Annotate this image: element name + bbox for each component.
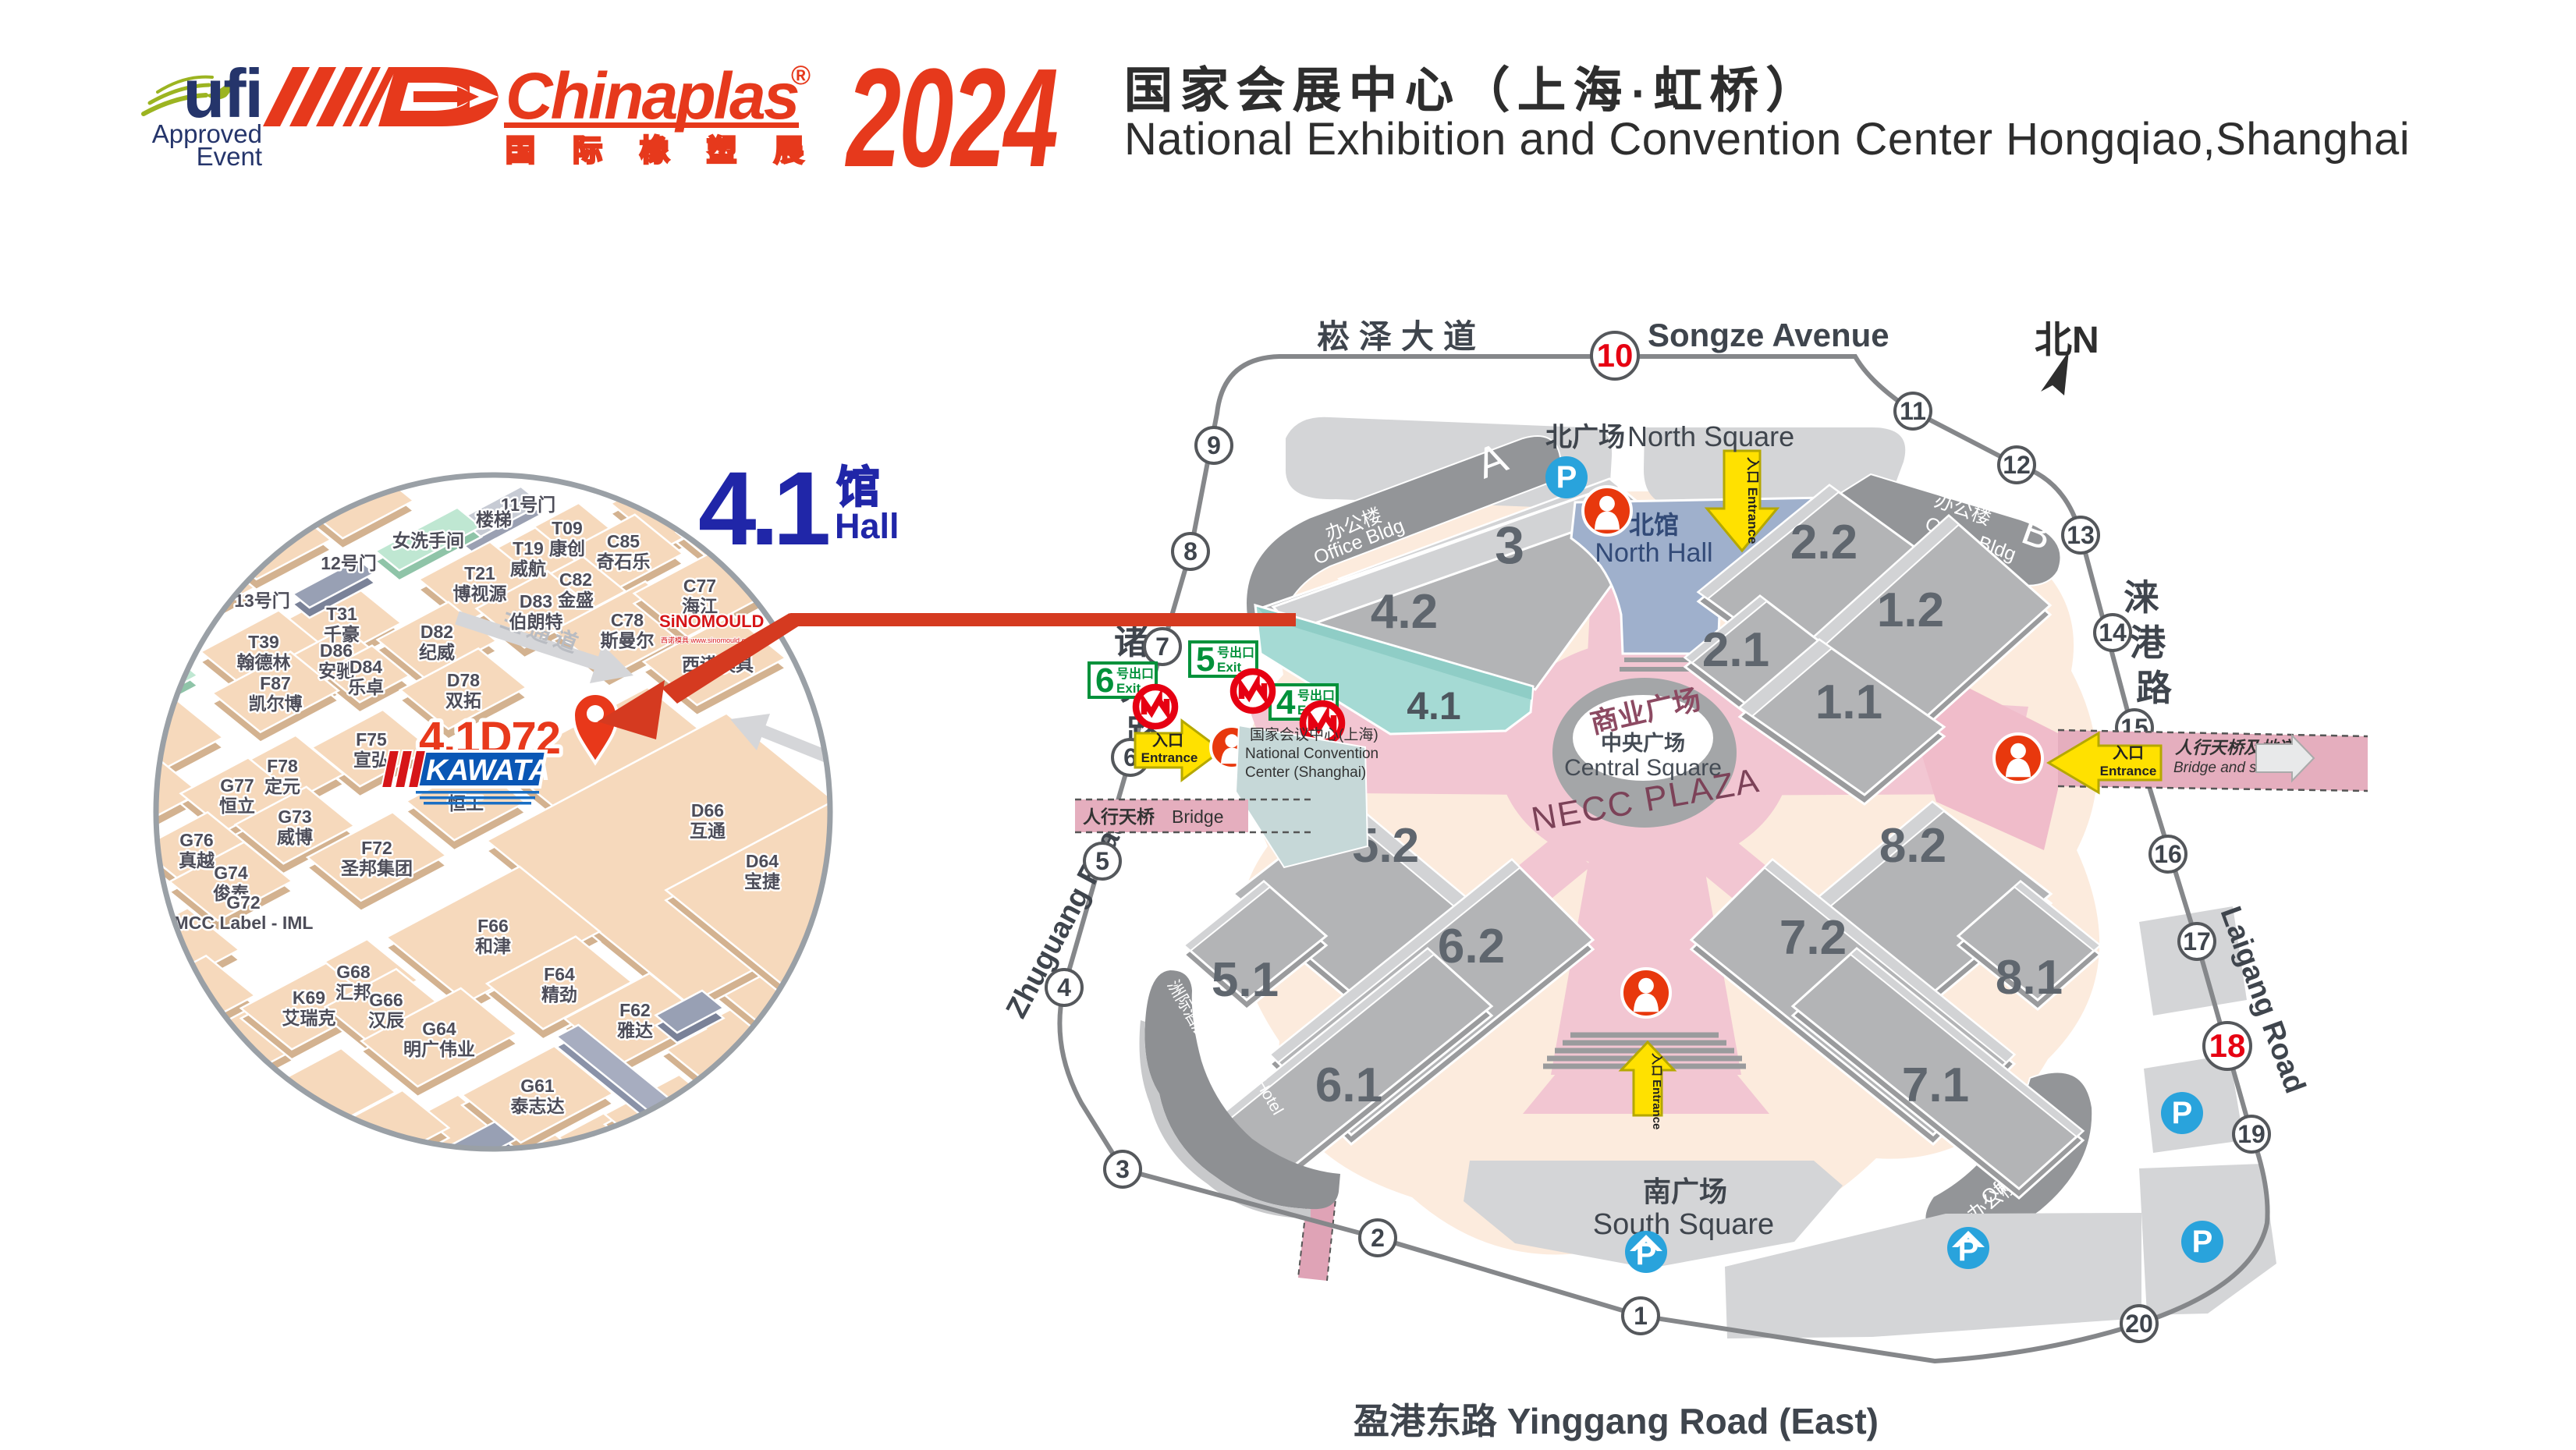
svg-text:人行天桥: 人行天桥 <box>1083 807 1155 827</box>
svg-text:间: 间 <box>133 571 151 591</box>
svg-text:北馆: 北馆 <box>1629 511 1679 539</box>
svg-text:南广场: 南广场 <box>1643 1175 1727 1207</box>
svg-text:8: 8 <box>1183 537 1198 565</box>
svg-text:National Exhibition and Conven: National Exhibition and Convention Cente… <box>1124 114 2410 165</box>
svg-text:入口 Entrance: 入口 Entrance <box>1650 1053 1663 1129</box>
svg-text:12: 12 <box>2003 451 2031 479</box>
svg-text:12号门: 12号门 <box>321 553 377 573</box>
svg-text:国际橡塑展: 国际橡塑展 <box>506 135 841 168</box>
svg-text:17: 17 <box>2183 927 2211 955</box>
svg-text:中央广场: 中央广场 <box>1601 732 1685 755</box>
svg-text:P: P <box>2192 1225 2213 1259</box>
svg-text:SiNOMOULD: SiNOMOULD <box>659 612 764 631</box>
svg-text:Entrance: Entrance <box>1141 750 1198 765</box>
svg-text:2024: 2024 <box>845 39 1057 197</box>
svg-text:North Hall: North Hall <box>1595 538 1712 568</box>
svg-text:Center (Shanghai): Center (Shanghai) <box>1245 764 1366 781</box>
svg-text:C77海江: C77海江 <box>682 576 718 616</box>
svg-text:F75宣弘: F75宣弘 <box>353 729 389 770</box>
svg-text:C82金盛: C82金盛 <box>557 569 594 610</box>
svg-text:7.2: 7.2 <box>1779 911 1847 965</box>
svg-text:6.1: 6.1 <box>1315 1058 1382 1112</box>
svg-text:10: 10 <box>1597 337 1634 374</box>
svg-text:1.1: 1.1 <box>1815 675 1882 729</box>
svg-text:P: P <box>2172 1096 2193 1130</box>
svg-text:8.2: 8.2 <box>1879 819 1946 873</box>
svg-text:Event: Event <box>197 142 262 171</box>
svg-text:P: P <box>1556 460 1577 495</box>
svg-text:F66和津: F66和津 <box>475 916 511 956</box>
svg-text:D82纪威: D82纪威 <box>419 622 455 662</box>
svg-text:楼梯: 楼梯 <box>476 509 512 530</box>
svg-text:4.1: 4.1 <box>1407 684 1461 728</box>
svg-text:4.1: 4.1 <box>698 451 829 567</box>
svg-text:Chinaplas: Chinaplas <box>506 59 798 133</box>
svg-text:North Square: North Square <box>1627 420 1794 452</box>
svg-text:6: 6 <box>1095 661 1114 700</box>
svg-text:2.1: 2.1 <box>1702 623 1769 677</box>
svg-text:D78双拓: D78双拓 <box>445 670 481 711</box>
svg-text:国家会展中心（上海·虹桥）: 国家会展中心（上海·虹桥） <box>1124 64 1822 118</box>
svg-text:路: 路 <box>2136 668 2173 708</box>
svg-text:9: 9 <box>1207 431 1221 459</box>
svg-text:F62雅达: F62雅达 <box>617 1000 653 1041</box>
svg-text:7.1: 7.1 <box>1902 1058 1969 1112</box>
svg-text:盈港东路 Yinggang Road (East): 盈港东路 Yinggang Road (East) <box>1354 1401 1879 1441</box>
svg-text:涞: 涞 <box>2124 577 2159 618</box>
svg-text:F78定元: F78定元 <box>264 756 300 796</box>
svg-text:Songze Avenue: Songze Avenue <box>1648 317 1889 353</box>
svg-text:入口 Entrance: 入口 Entrance <box>1745 457 1760 544</box>
svg-text:6.2: 6.2 <box>1438 920 1505 973</box>
svg-text:入口: 入口 <box>1152 732 1183 750</box>
svg-text:馆: 馆 <box>836 463 880 512</box>
svg-text:D64宝捷: D64宝捷 <box>744 851 781 892</box>
svg-text:诸: 诸 <box>1114 623 1148 661</box>
svg-text:4: 4 <box>1057 973 1071 1002</box>
svg-text:号出口: 号出口 <box>1217 645 1254 660</box>
svg-text:3: 3 <box>1116 1155 1130 1183</box>
svg-text:20: 20 <box>2125 1310 2153 1338</box>
svg-text:13号门: 13号门 <box>234 590 290 611</box>
svg-text:4: 4 <box>1276 683 1296 721</box>
svg-text:T09康创: T09康创 <box>549 518 585 558</box>
svg-text:2.2: 2.2 <box>1790 516 1857 569</box>
svg-text:女洗手间: 女洗手间 <box>392 530 464 551</box>
svg-text:18: 18 <box>2209 1027 2246 1064</box>
svg-text:G77恒立: G77恒立 <box>219 775 255 816</box>
svg-text:D66互通: D66互通 <box>690 800 726 841</box>
svg-text:National Convention: National Convention <box>1245 746 1378 762</box>
svg-text:2: 2 <box>1371 1224 1385 1252</box>
svg-text:4.2: 4.2 <box>1371 585 1438 639</box>
svg-text:G76真越: G76真越 <box>179 830 215 870</box>
svg-text:入口: 入口 <box>2113 744 2144 762</box>
svg-text:1: 1 <box>1634 1302 1648 1330</box>
svg-text:Entrance: Entrance <box>2100 764 2157 778</box>
svg-text:号出口: 号出口 <box>1116 666 1154 681</box>
svg-text:14: 14 <box>2099 619 2127 647</box>
svg-text:D84乐卓: D84乐卓 <box>348 657 384 697</box>
svg-text:T31千豪: T31千豪 <box>324 604 360 644</box>
svg-text:8.1: 8.1 <box>1996 951 2063 1005</box>
svg-text:Bridge: Bridge <box>1172 807 1223 827</box>
svg-text:19: 19 <box>2237 1120 2266 1148</box>
svg-text:港: 港 <box>2130 622 2166 663</box>
svg-text:崧泽大道: 崧泽大道 <box>1317 318 1485 355</box>
svg-text:7: 7 <box>1155 633 1169 661</box>
svg-text:3: 3 <box>1495 516 1524 575</box>
svg-text:Hall: Hall <box>835 506 899 546</box>
svg-text:11: 11 <box>1900 397 1926 425</box>
svg-text:G68汇邦: G68汇邦 <box>335 962 371 1002</box>
svg-text:South Square: South Square <box>1593 1208 1774 1241</box>
svg-text:P: P <box>1958 1233 1979 1267</box>
svg-text:国家会议中心(上海): 国家会议中心(上海) <box>1250 726 1378 743</box>
svg-text:5: 5 <box>1095 847 1109 875</box>
svg-text:®: ® <box>791 61 811 90</box>
svg-text:KAWATA: KAWATA <box>426 754 550 787</box>
svg-text:5: 5 <box>1196 640 1215 679</box>
svg-text:号出口: 号出口 <box>1297 688 1335 703</box>
svg-text:F64精劲: F64精劲 <box>541 964 577 1005</box>
svg-text:16: 16 <box>2154 840 2182 868</box>
svg-text:G66汉辰: G66汉辰 <box>368 990 404 1030</box>
svg-text:Exit: Exit <box>1217 660 1242 675</box>
svg-text:13: 13 <box>2067 521 2095 549</box>
svg-text:P: P <box>1636 1237 1657 1271</box>
svg-text:G73威博: G73威博 <box>277 807 313 847</box>
svg-text:T19威航: T19威航 <box>510 538 546 579</box>
svg-text:1.2: 1.2 <box>1877 583 1944 637</box>
svg-text:北广场: 北广场 <box>1545 423 1625 452</box>
